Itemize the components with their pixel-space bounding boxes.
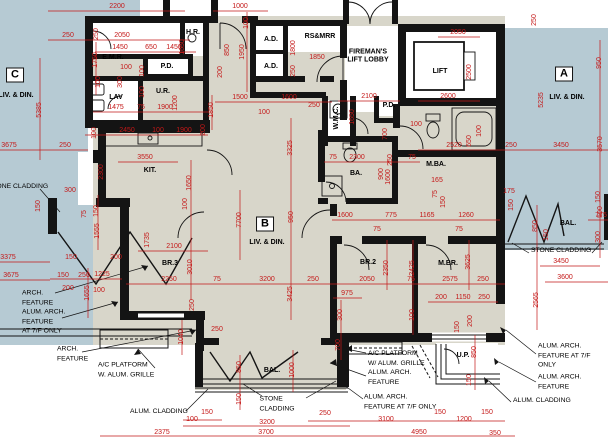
dimension-label: 3700	[258, 429, 274, 437]
room-label: BAL.	[560, 220, 576, 228]
dimension-label: 1200	[172, 95, 180, 111]
dimension-label: 1500	[232, 94, 248, 102]
dimension-label: 150	[543, 229, 551, 241]
dimension-label: 100	[186, 416, 198, 424]
dimension-label: 4950	[411, 429, 427, 437]
dimension-label: 250	[478, 294, 490, 302]
dimension-label: 100	[95, 76, 103, 88]
dimension-label: 75	[137, 104, 145, 112]
dimension-label: 250	[189, 299, 197, 311]
dimension-label: 250	[78, 272, 90, 280]
dimension-label: 100	[120, 64, 132, 72]
dimension-label: 3550	[137, 154, 153, 162]
dimension-label: 350	[489, 430, 501, 438]
dimension-label: 2500	[466, 64, 474, 80]
annotation-label: ARCH. FEATURE	[22, 288, 53, 307]
dimension-label: 3375	[0, 254, 16, 262]
dimension-label: 3675	[1, 142, 17, 150]
dimension-label: 75	[329, 154, 337, 162]
annotation-label: A/C PLATFORM W. ALUM. GRILLE	[98, 360, 154, 379]
dimension-label: 650	[145, 44, 157, 52]
dimension-label: 700	[382, 128, 390, 140]
unit-marker: C	[6, 68, 24, 83]
dimension-label: 100	[409, 309, 417, 321]
dimension-label: 1600	[385, 169, 393, 185]
dimension-label: 1165	[419, 212, 434, 220]
dimension-label: 850	[236, 361, 244, 373]
dimension-label: 1150	[455, 294, 470, 302]
dimension-label: 1900	[157, 104, 173, 112]
dimension-label: 1650	[179, 39, 187, 55]
dimension-label: 5235	[538, 92, 546, 108]
dimension-label: 150	[454, 321, 462, 333]
room-label: BR.3	[162, 260, 178, 268]
dimension-label: 1475	[108, 104, 124, 112]
dimension-label: 165	[431, 177, 443, 185]
dimension-label: 150	[236, 393, 244, 405]
dimension-label: 150	[201, 409, 213, 417]
dimension-label: 250	[93, 28, 101, 40]
dimension-label: 75	[432, 190, 440, 198]
dimension-label: 250	[387, 154, 395, 166]
dimension-label: 950	[596, 57, 604, 69]
dimension-label: 1750	[92, 52, 100, 68]
floor-plan: 2200100010025020502501450650145016508501…	[0, 0, 608, 439]
dimension-label: 1225	[94, 271, 110, 279]
dimension-label: 250	[319, 410, 331, 418]
room-label: M.BR.	[438, 260, 458, 268]
dimension-label: 1200	[456, 416, 472, 424]
dimension-label: 2565	[533, 292, 541, 308]
dimension-label: 75	[213, 276, 221, 284]
dimension-label: 2250	[161, 276, 177, 284]
dimension-label: 150	[65, 254, 77, 262]
dimension-label: 3675	[3, 272, 19, 280]
annotation-label: ALUM. CLADDING	[513, 396, 571, 406]
dimension-label: 200	[217, 66, 225, 78]
dimension-label: 100	[258, 109, 270, 117]
annotation-label: STONE CLADDING	[531, 246, 591, 256]
dimension-label: 250	[62, 32, 74, 40]
annotation-label: A/C PLATFORM W/ ALUM. GRILLE ALUM. ARCH.…	[368, 349, 425, 387]
dimension-label: 250	[505, 142, 517, 150]
room-label: LAV	[109, 94, 122, 102]
dimension-label: 150	[35, 200, 43, 212]
dimension-label: 300	[117, 76, 125, 88]
room-label: A.D.	[264, 63, 278, 71]
dimension-label: 150	[93, 205, 101, 217]
dimension-label: 1600	[337, 212, 353, 220]
dimension-label: 5385	[36, 102, 44, 118]
dimension-label: 100	[91, 127, 99, 139]
room-label: W.M.C.	[333, 107, 341, 130]
room-label: LIV. & DIN.	[549, 94, 584, 102]
dimension-label: 1000	[289, 362, 297, 378]
dimension-label: 2575	[442, 276, 458, 284]
dimension-label: 300	[337, 309, 345, 321]
room-label: M.BA.	[426, 161, 446, 169]
dimension-label: 775	[385, 212, 397, 220]
dimension-label: 3450	[553, 258, 569, 266]
dimension-label: 2425	[409, 260, 417, 276]
dimension-label: 2520	[446, 142, 462, 150]
room-label: P.D.	[383, 102, 396, 110]
dimension-label: 150	[481, 409, 493, 417]
dimension-label: 1000	[232, 3, 248, 11]
dimension-label: 250	[211, 326, 223, 334]
room-label: RS&MRR	[305, 33, 336, 41]
dimension-label: 2300	[349, 154, 365, 162]
dimension-label: 7700	[236, 212, 244, 228]
dimension-label: 3425	[287, 286, 295, 302]
dimension-label: 1655	[84, 285, 92, 301]
dimension-label: 300	[595, 231, 603, 243]
room-label: LIFT	[433, 68, 448, 76]
dimension-label: 250	[290, 65, 298, 77]
dimension-label: 1900	[176, 127, 192, 135]
dimension-label: 150	[57, 272, 69, 280]
room-label: U.P.	[457, 352, 470, 360]
annotation-label: ALUM. ARCH. FEATURE AT 7/F ONLY	[538, 342, 608, 371]
dimension-label: 150	[508, 199, 516, 211]
dimension-label: 3100	[378, 416, 394, 424]
dimension-label: 100	[476, 125, 484, 137]
dimension-label: 100	[410, 121, 422, 129]
room-label: U.R.	[156, 88, 170, 96]
dimension-label: 2375	[154, 429, 170, 437]
room-label: BAL.	[264, 367, 280, 375]
dimension-label: 850	[532, 220, 540, 232]
dimension-label: 500	[597, 206, 605, 218]
dimension-label: 2050	[114, 32, 130, 40]
annotation-label: ALUM. ARCH. FEATURE AT 7/F ONLY	[364, 392, 436, 411]
dimension-label: 200	[435, 294, 447, 302]
unit-marker: A	[555, 67, 573, 82]
room-label: BR.2	[360, 259, 376, 267]
dimension-label: 3010	[187, 259, 195, 275]
dimension-label: 1450	[112, 44, 128, 52]
dimension-label: 75	[81, 210, 89, 218]
dimension-label: 1950	[239, 44, 247, 60]
room-label: BA.	[350, 170, 362, 178]
room-label: E.M.R.	[102, 54, 123, 62]
dimension-label: 250	[531, 14, 539, 26]
dimension-label: 150	[466, 374, 474, 386]
dimension-label: 1600	[281, 94, 297, 102]
dimension-label: 1735	[144, 232, 152, 248]
dimension-label: 975	[341, 290, 353, 298]
room-label: A.D.	[264, 36, 278, 44]
dimension-label: 700	[335, 339, 343, 351]
dimension-label: 2600	[440, 93, 456, 101]
dimension-label: 950	[288, 211, 296, 223]
dimension-label: 100	[139, 65, 147, 77]
dimension-label: 100	[93, 287, 105, 295]
room-label: LIV. & DIN.	[0, 92, 34, 100]
room-label: LIV. & DIN.	[249, 239, 284, 247]
dimension-label: 75	[373, 226, 381, 234]
dimension-label: 100	[139, 86, 147, 98]
dimension-label: 1650	[186, 175, 194, 191]
dimension-label: 250	[59, 142, 71, 150]
dimension-label: 2100	[361, 93, 377, 101]
dimension-label: 75	[408, 154, 416, 162]
dimension-label: 1555	[94, 223, 102, 239]
room-label: H.R.	[186, 29, 200, 37]
room-label: P.D.	[161, 63, 174, 71]
room-label: KIT.	[144, 167, 156, 175]
room-label: FIREMAN'S LIFT LOBBY	[347, 48, 388, 63]
dimension-label: 100	[243, 17, 251, 29]
dimension-label: 2350	[383, 260, 391, 276]
dimension-label: 2050	[359, 276, 375, 284]
annotation-label: ALUM. ARCH. FEATURE	[538, 372, 581, 391]
annotation-label: STONE CLADDING	[259, 394, 294, 413]
dimension-label: 850	[471, 346, 479, 358]
annotation-label: ALUM. CLADDING	[130, 407, 188, 417]
dimension-label: 3450	[553, 142, 569, 150]
annotation-label: ALUM. ARCH. FEATURE AT 7/F ONLY	[22, 308, 65, 337]
dimension-label: 3200	[259, 276, 275, 284]
annotation-label: ARCH. FEATURE	[57, 344, 88, 363]
dimension-label: 175	[503, 188, 515, 196]
dimension-label: 3325	[287, 140, 295, 156]
dimension-label: 3625	[465, 254, 473, 270]
dimension-label: 2050	[450, 29, 466, 37]
dimension-label: 2100	[166, 243, 182, 251]
dimension-label: 2300	[98, 164, 106, 180]
dimension-label: 150	[595, 191, 603, 203]
dimension-label: 1800	[290, 40, 298, 56]
dimension-label: 3570	[597, 136, 605, 152]
dimension-label: 1040	[178, 329, 186, 345]
dimension-label: 300	[64, 187, 76, 195]
dimension-label: 75	[455, 226, 463, 234]
dimension-label: 650	[466, 135, 474, 147]
dimension-label: 3200	[259, 419, 275, 427]
dimension-label: 250	[307, 276, 319, 284]
dimension-label: 200	[200, 124, 208, 136]
dimension-label: 250	[308, 102, 320, 110]
dimension-label: 75	[407, 276, 415, 284]
dimension-label: 200	[110, 254, 122, 262]
dimension-label: 250	[477, 276, 489, 284]
dimension-label: 200	[467, 315, 475, 327]
dimension-label: 1850	[309, 54, 325, 62]
unit-marker: B	[256, 217, 274, 232]
dimension-label: 850	[224, 44, 232, 56]
dimension-label: 1650	[349, 109, 357, 125]
dimension-label: 1260	[458, 212, 474, 220]
labels-layer: 2200100010025020502501450650145016508501…	[0, 0, 608, 439]
dimension-label: 3600	[557, 274, 573, 282]
dimension-label: 100	[182, 198, 190, 210]
dimension-label: 2450	[119, 127, 135, 135]
annotation-label: STONE CLADDING	[0, 182, 48, 192]
dimension-label: 200	[62, 285, 74, 293]
dimension-label: 150	[440, 196, 448, 208]
dimension-label: 2200	[109, 3, 125, 11]
dimension-label: 100	[152, 127, 164, 135]
dimension-label: 1850	[208, 102, 216, 118]
